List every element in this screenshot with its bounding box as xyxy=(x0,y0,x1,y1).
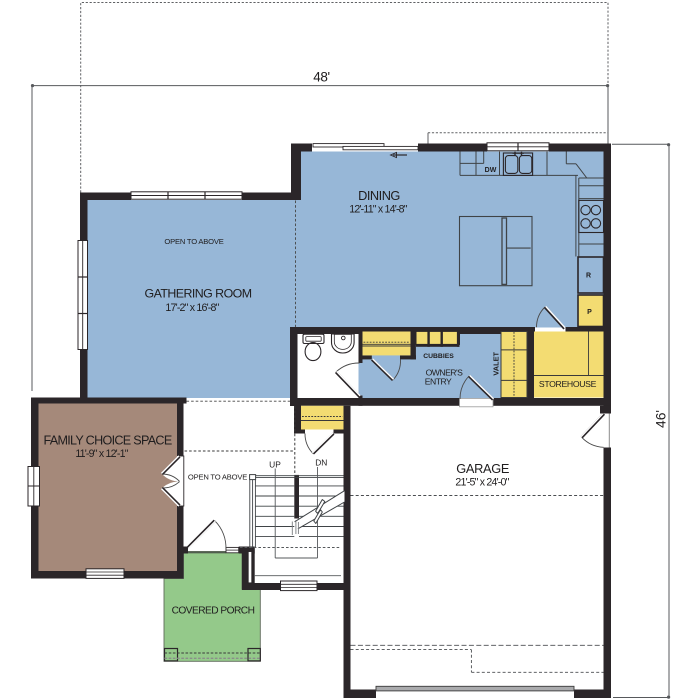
svg-text:21'-5" x 24'-0": 21'-5" x 24'-0" xyxy=(455,477,509,489)
svg-text:12'-11" x 14'-8": 12'-11" x 14'-8" xyxy=(349,204,408,216)
svg-text:CUBBIES: CUBBIES xyxy=(423,353,454,360)
svg-text:R: R xyxy=(586,273,591,280)
svg-text:48': 48' xyxy=(313,69,329,84)
svg-text:GATHERING ROOM: GATHERING ROOM xyxy=(144,287,251,301)
svg-text:11'-9" x 12'-1": 11'-9" x 12'-1" xyxy=(75,448,128,460)
svg-text:46': 46' xyxy=(653,410,668,428)
svg-text:OPEN TO ABOVE: OPEN TO ABOVE xyxy=(164,237,223,246)
svg-text:ENTRY: ENTRY xyxy=(425,377,452,387)
svg-text:P: P xyxy=(587,309,592,316)
svg-text:OPEN TO ABOVE: OPEN TO ABOVE xyxy=(188,473,247,482)
svg-text:STOREHOUSE: STOREHOUSE xyxy=(539,379,597,389)
svg-text:FAMILY CHOICE SPACE: FAMILY CHOICE SPACE xyxy=(43,433,171,447)
svg-text:UP: UP xyxy=(269,460,281,470)
svg-text:DINING: DINING xyxy=(358,188,400,203)
svg-text:GARAGE: GARAGE xyxy=(456,461,509,476)
svg-text:COVERED PORCH: COVERED PORCH xyxy=(172,606,255,617)
svg-text:DW: DW xyxy=(485,167,497,174)
svg-text:17'-2" x 16'-8": 17'-2" x 16'-8" xyxy=(165,302,219,314)
svg-text:VALET: VALET xyxy=(492,351,501,375)
svg-text:DN: DN xyxy=(315,458,327,468)
